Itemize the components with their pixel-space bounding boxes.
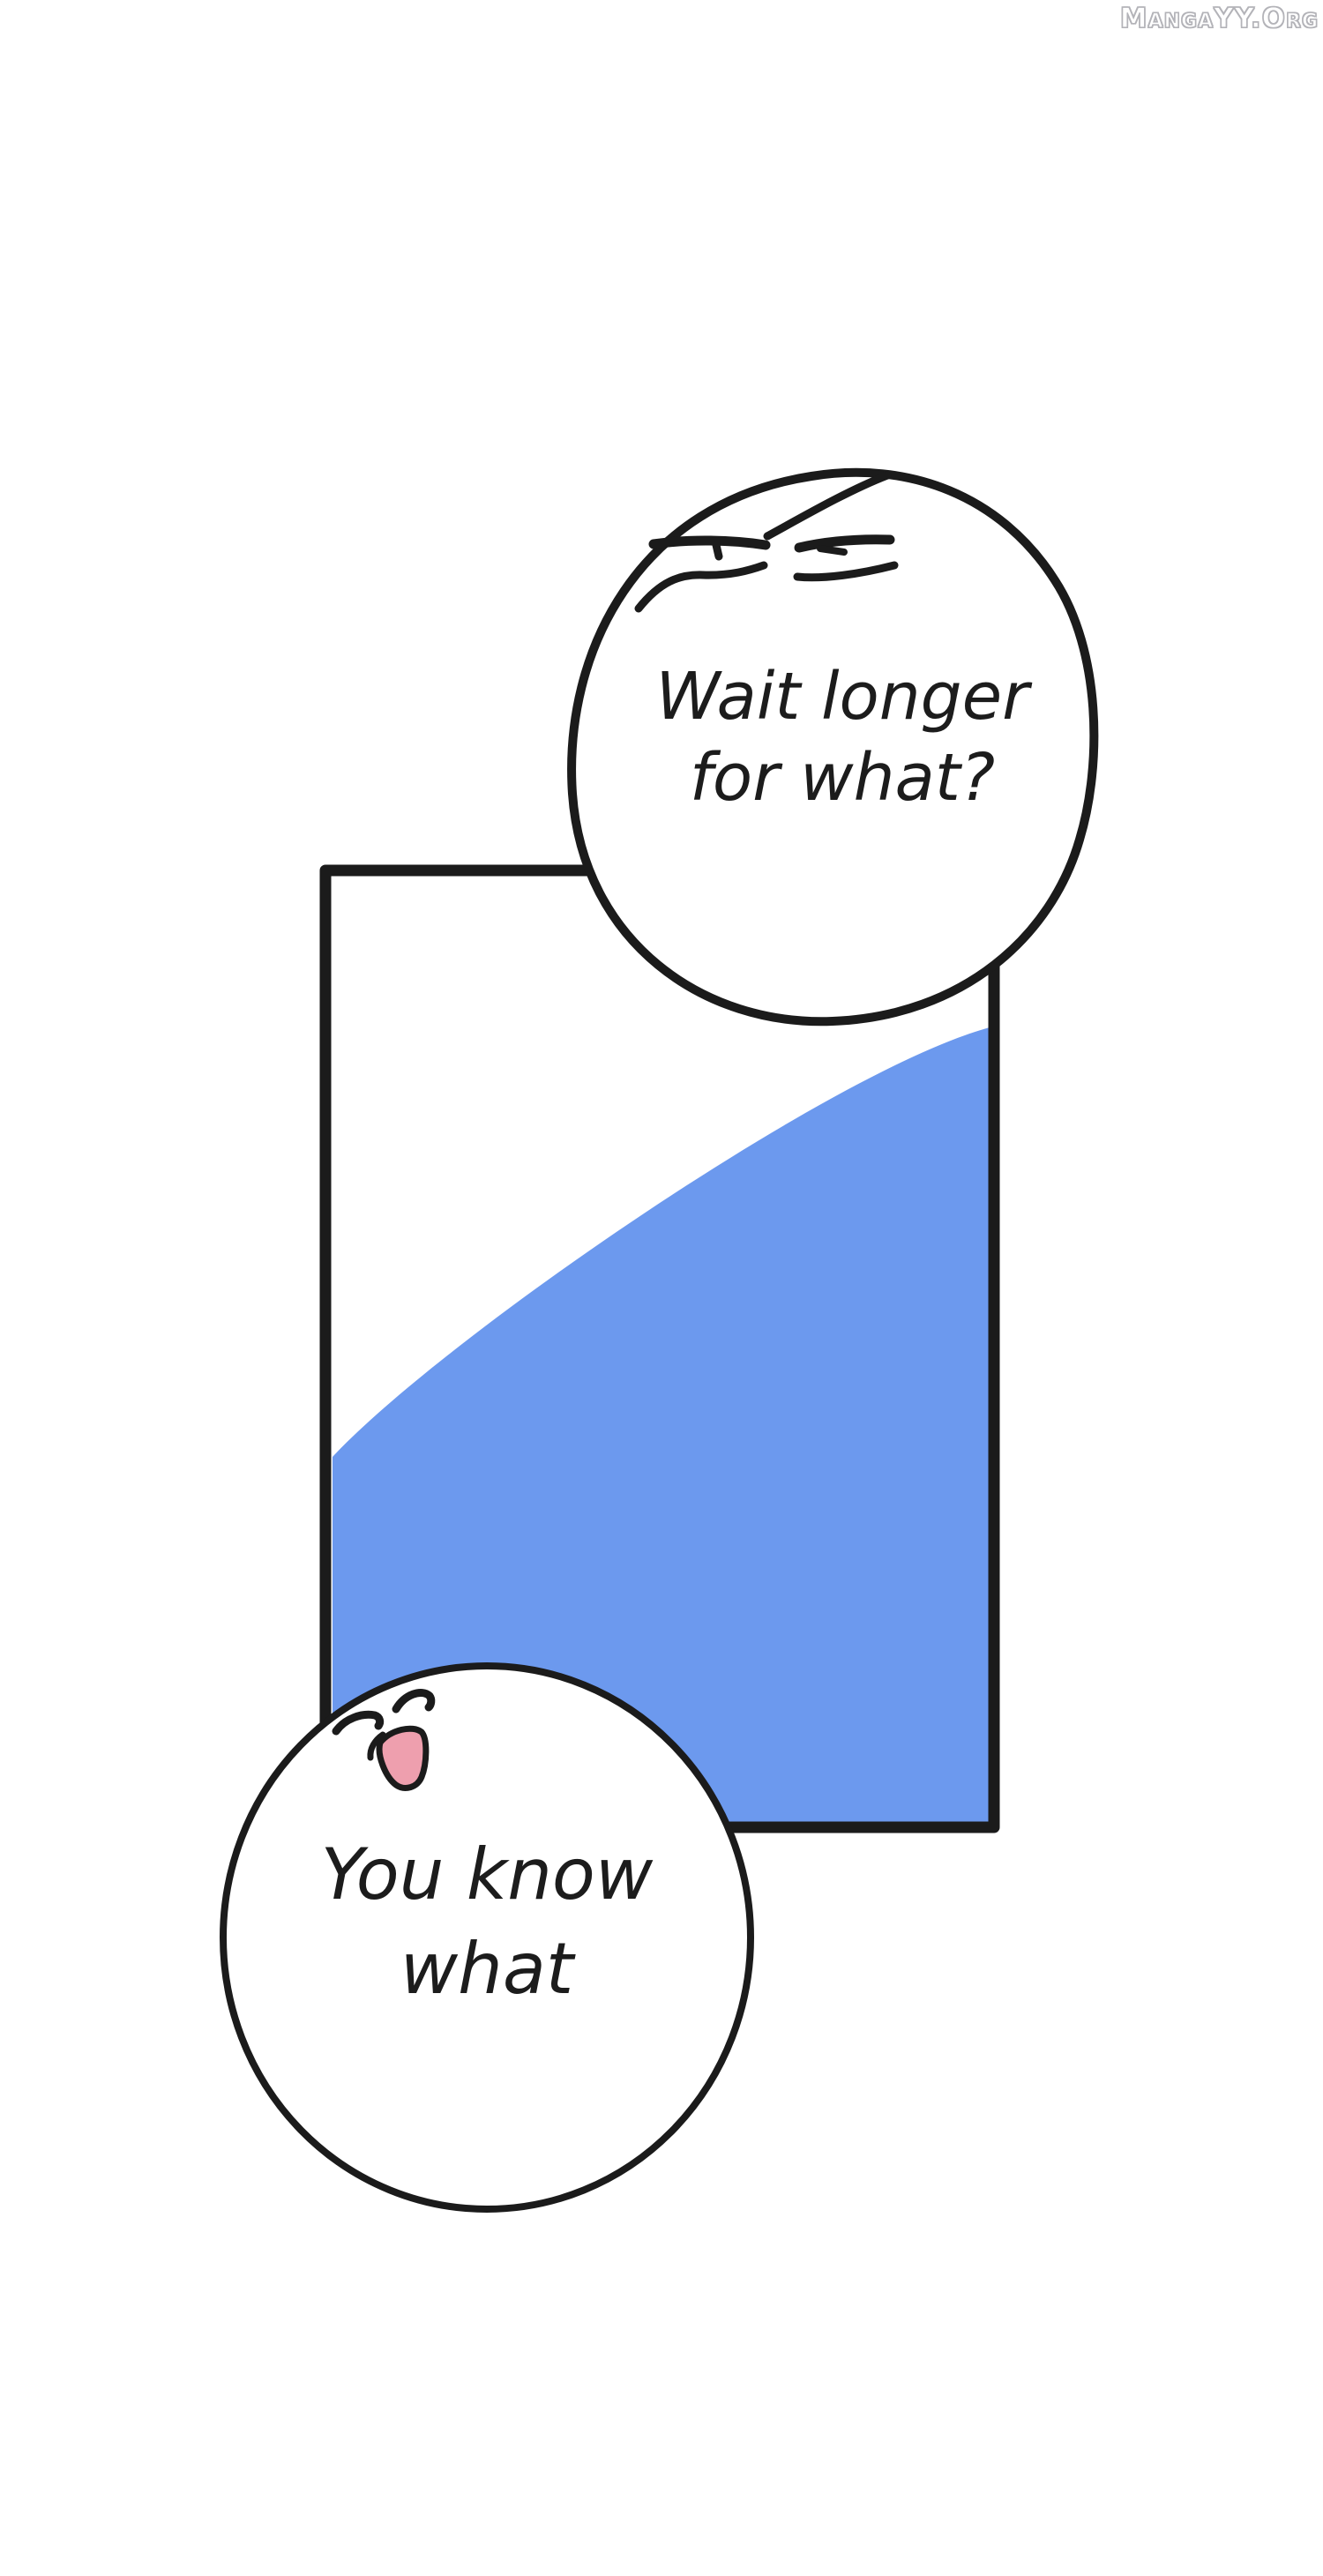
comic-artwork xyxy=(0,0,1323,2576)
manga-page: MangaYY.Org Wait longer for what? You kn… xyxy=(0,0,1323,2576)
right-eye-pupil-tick xyxy=(820,549,844,552)
left-eye-upper-lid xyxy=(654,541,766,545)
top-bubble-line-1: Wait longer xyxy=(578,656,1107,737)
bottom-bubble-text: You know what xyxy=(266,1827,707,2016)
top-bubble-line-2: for what? xyxy=(578,737,1107,818)
top-bubble-text: Wait longer for what? xyxy=(578,656,1107,818)
bottom-bubble-line-2: what xyxy=(266,1922,707,2016)
site-watermark: MangaYY.Org xyxy=(1120,3,1319,34)
left-eye-pupil-tick xyxy=(716,545,719,556)
bottom-bubble-line-1: You know xyxy=(266,1827,707,1922)
